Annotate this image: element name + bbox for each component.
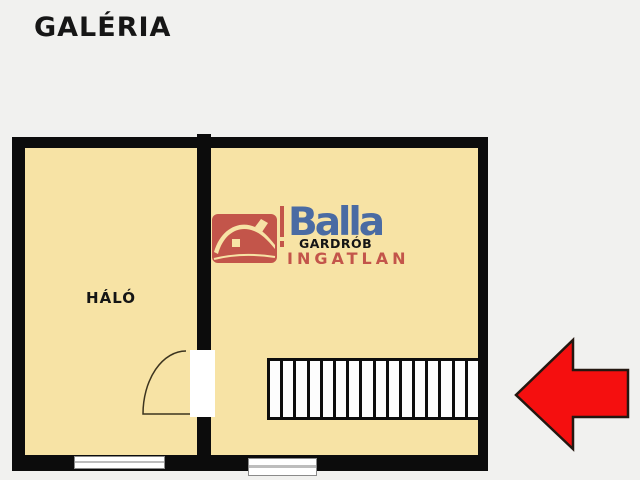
stair-step	[310, 361, 320, 417]
stair-step	[402, 361, 412, 417]
window-pane-line	[75, 461, 164, 463]
stair-step	[389, 361, 399, 417]
logo-accent-bar	[280, 206, 284, 237]
stair-step	[336, 361, 346, 417]
stair-step	[428, 361, 438, 417]
window	[74, 456, 165, 469]
logo-subtitle-text: INGATLAN	[287, 249, 410, 268]
house-icon	[212, 214, 277, 263]
stair-step	[323, 361, 333, 417]
stair-step	[376, 361, 386, 417]
stair-step	[270, 361, 280, 417]
room-label-wardrobe: GARDRÓB	[299, 236, 372, 251]
window	[248, 458, 317, 476]
window-pane-line	[249, 465, 316, 468]
door-swing-arc	[140, 348, 195, 418]
stair-step	[455, 361, 465, 417]
stair-step	[415, 361, 425, 417]
stair-step	[441, 361, 451, 417]
stair-step	[349, 361, 359, 417]
stair-step	[296, 361, 306, 417]
stair-step	[283, 361, 293, 417]
divider-wall-notch	[197, 134, 211, 137]
page-title: GALÉRIA	[34, 12, 171, 43]
stair-step	[362, 361, 372, 417]
stair-step	[468, 361, 478, 417]
staircase	[267, 358, 481, 420]
room-label-bedroom: HÁLÓ	[25, 289, 197, 307]
logo-accent-dot	[280, 241, 284, 247]
left-arrow-icon	[510, 334, 634, 456]
